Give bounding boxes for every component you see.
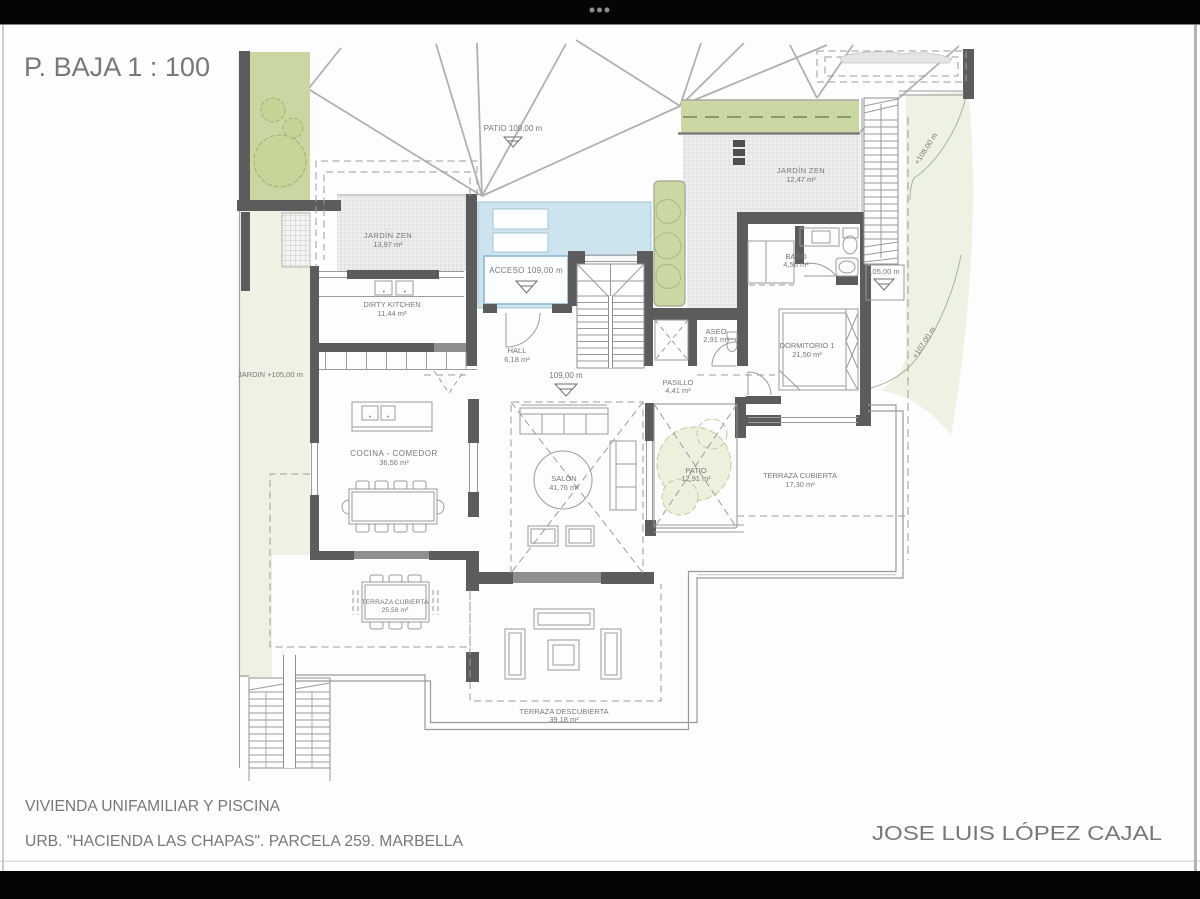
svg-text:4,41 m²: 4,41 m²	[665, 386, 691, 395]
svg-text:VIVIENDA UNIFAMILIAR Y PISCINA: VIVIENDA UNIFAMILIAR Y PISCINA	[25, 798, 281, 815]
svg-text:URB. "HACIENDA LAS CHAPAS". PA: URB. "HACIENDA LAS CHAPAS". PARCELA 259.…	[25, 833, 464, 850]
svg-text:TERRAZA CUBIERTA: TERRAZA CUBIERTA	[362, 599, 429, 606]
svg-text:36,56 m²: 36,56 m²	[379, 458, 409, 467]
svg-text:COCINA - COMEDOR: COCINA - COMEDOR	[350, 449, 438, 458]
svg-text:SALÓN: SALÓN	[551, 474, 576, 483]
svg-text:25,59 m²: 25,59 m²	[382, 607, 410, 614]
svg-text:109,00 m: 109,00 m	[549, 371, 583, 380]
svg-text:JARDÍN ZEN: JARDÍN ZEN	[364, 231, 412, 240]
svg-text:6,18 m²: 6,18 m²	[504, 355, 530, 364]
svg-text:41,76 m²: 41,76 m²	[549, 483, 579, 492]
svg-text:4,56 m²: 4,56 m²	[783, 260, 809, 269]
svg-text:39,18 m²: 39,18 m²	[549, 715, 579, 724]
svg-text:21,50 m²: 21,50 m²	[792, 350, 822, 359]
svg-text:11,44 m²: 11,44 m²	[377, 309, 407, 318]
svg-text:TERRAZA CUBIERTA: TERRAZA CUBIERTA	[763, 471, 837, 480]
svg-text:JARDÍN ZEN: JARDÍN ZEN	[777, 166, 825, 175]
svg-text:17,30 m²: 17,30 m²	[785, 480, 815, 489]
svg-text:2,91 m²: 2,91 m²	[703, 335, 729, 344]
svg-text:PATIO 109,00 m: PATIO 109,00 m	[484, 124, 543, 133]
svg-text:DORMITORIO 1: DORMITORIO 1	[780, 341, 835, 350]
svg-text:ACCESO 109,00 m: ACCESO 109,00 m	[489, 266, 563, 275]
svg-text:105,00 m: 105,00 m	[868, 267, 899, 276]
svg-text:P. BAJA 1 : 100: P. BAJA 1 : 100	[24, 52, 210, 82]
svg-text:12,91 m²: 12,91 m²	[681, 474, 711, 483]
svg-text:HALL: HALL	[508, 346, 527, 355]
svg-text:12,47 m²: 12,47 m²	[786, 175, 816, 184]
svg-text:JOSE LUIS LÓPEZ CAJAL: JOSE LUIS LÓPEZ CAJAL	[872, 822, 1162, 845]
svg-text:13,97 m²: 13,97 m²	[373, 240, 403, 249]
svg-text:DIRTY KITCHEN: DIRTY KITCHEN	[363, 300, 420, 309]
svg-text:JARDIN +105,00 m: JARDIN +105,00 m	[238, 370, 303, 379]
